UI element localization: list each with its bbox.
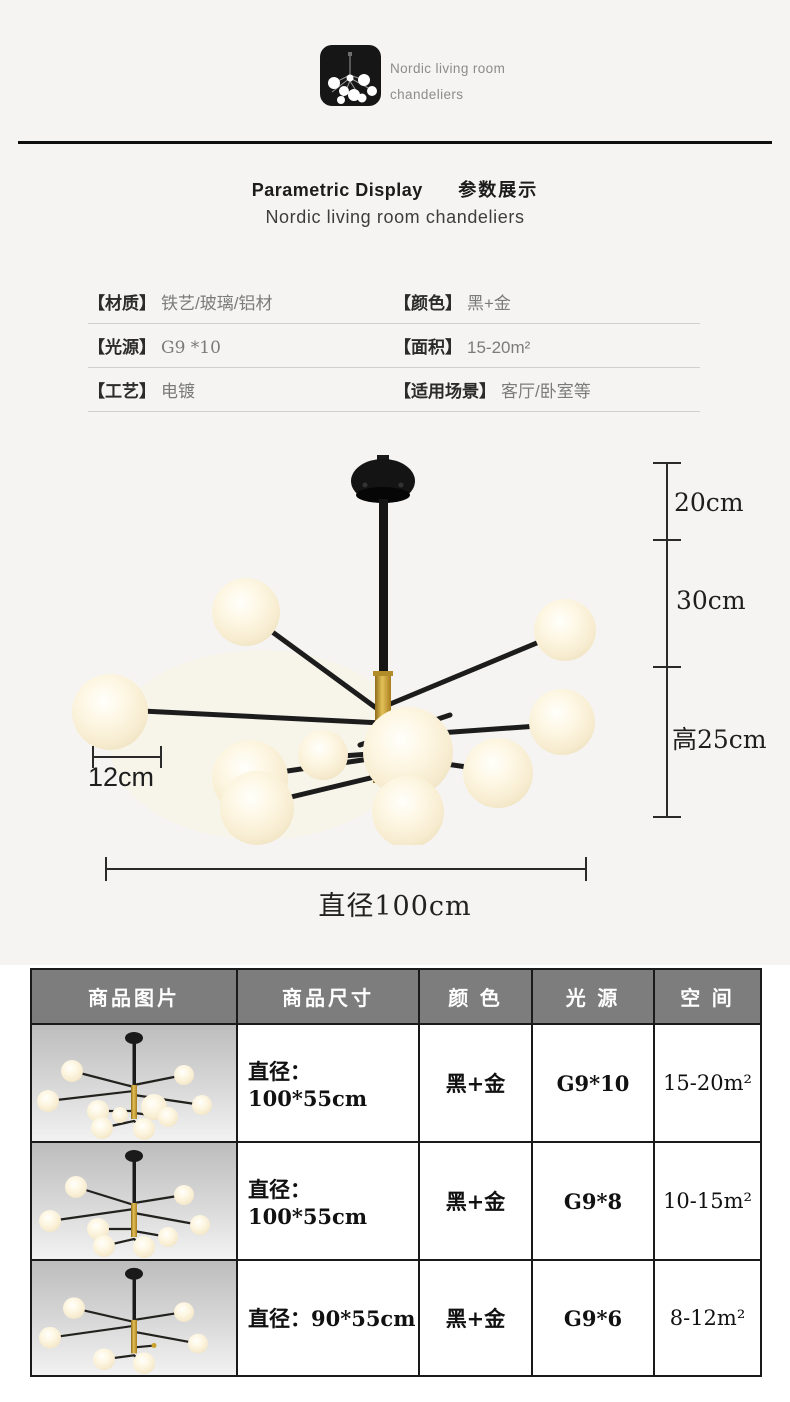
diameter-dimension-line — [105, 868, 587, 870]
dim-top-rod: 20cm — [674, 488, 744, 517]
dim-mid-rod: 30cm — [676, 586, 746, 615]
product-figure: 20cm 30cm 高25cm 12cm 直径100cm — [0, 440, 790, 965]
dim-diameter: 直径100cm — [0, 884, 790, 923]
param-light-source: 【光源】 G9 *10 — [88, 333, 394, 358]
page-title: Parametric Display 参数展示 — [0, 176, 790, 202]
page-subtitle: Nordic living room chandeliers — [0, 207, 790, 228]
product-photo — [32, 1261, 236, 1375]
parameter-list: 【材质】 铁艺/玻璃/铝材 【颜色】 黑+金 【光源】 G9 *10 【面积】 … — [88, 280, 700, 412]
product-photo — [32, 1143, 236, 1259]
param-label: 【材质】 — [88, 289, 156, 314]
param-label: 【适用场景】 — [394, 377, 496, 402]
param-color: 【颜色】 黑+金 — [394, 289, 700, 314]
product-photo — [32, 1025, 236, 1141]
cell-color: 黑+金 — [420, 1261, 531, 1375]
param-value: 黑+金 — [467, 289, 511, 314]
dimension-tick — [653, 462, 681, 464]
dimension-tick — [653, 816, 681, 818]
parameter-row: 【工艺】 电镀 【适用场景】 客厅/卧室等 — [88, 368, 700, 412]
dim-body-height: 高25cm — [672, 720, 767, 756]
brand-name-line1: Nordic living room — [390, 56, 505, 82]
dimension-tick — [105, 857, 107, 881]
param-label: 【工艺】 — [88, 377, 156, 402]
dim-globe: 12cm — [88, 762, 154, 793]
dimension-tick — [653, 539, 681, 541]
brand-name-line2: chandeliers — [390, 82, 505, 108]
cell-space: 15-20m² — [655, 1025, 760, 1141]
col-header-light: 光 源 — [533, 970, 653, 1023]
param-value: 15-20m² — [467, 338, 530, 358]
param-material: 【材质】 铁艺/玻璃/铝材 — [88, 289, 394, 314]
cell-size: 直径：90*55cm — [238, 1261, 418, 1375]
col-header-color: 颜 色 — [420, 970, 531, 1023]
param-label: 【光源】 — [88, 333, 156, 358]
param-value: 电镀 — [161, 377, 195, 402]
param-value: 铁艺/玻璃/铝材 — [161, 289, 272, 314]
param-value: G9 *10 — [161, 338, 221, 358]
cell-size: 直径：100*55cm — [238, 1025, 418, 1141]
page-title-zh: 参数展示 — [458, 180, 538, 200]
param-area: 【面积】 15-20m² — [394, 333, 700, 358]
param-label: 【面积】 — [394, 333, 462, 358]
col-header-space: 空 间 — [655, 970, 760, 1023]
param-value: 客厅/卧室等 — [501, 377, 591, 402]
cell-color: 黑+金 — [420, 1025, 531, 1141]
cell-space: 10-15m² — [655, 1143, 760, 1259]
cell-size: 直径：100*55cm — [238, 1143, 418, 1259]
parameter-row: 【材质】 铁艺/玻璃/铝材 【颜色】 黑+金 — [88, 280, 700, 324]
brand-logo-icon — [320, 45, 381, 106]
globe-dimension-line — [92, 756, 162, 758]
dimension-tick — [160, 746, 162, 768]
cell-light: G9*10 — [533, 1025, 653, 1141]
variant-table: 商品图片 商品尺寸 颜 色 光 源 空 间 — [30, 968, 762, 1377]
param-label: 【颜色】 — [394, 289, 462, 314]
page-title-en: Parametric Display — [252, 180, 423, 200]
divider-line — [18, 141, 772, 144]
variant-table-section: 商品图片 商品尺寸 颜 色 光 源 空 间 — [0, 965, 790, 1402]
parametric-display-section: Nordic living room chandeliers Parametri… — [0, 0, 790, 965]
cell-color: 黑+金 — [420, 1143, 531, 1259]
col-header-size: 商品尺寸 — [238, 970, 418, 1023]
cell-light: G9*6 — [533, 1261, 653, 1375]
cell-space: 8-12m² — [655, 1261, 760, 1375]
brand-name: Nordic living room chandeliers — [390, 56, 505, 108]
vertical-dimension-line — [666, 463, 668, 818]
dimension-tick — [653, 666, 681, 668]
param-craft: 【工艺】 电镀 — [88, 377, 394, 402]
col-header-photo: 商品图片 — [32, 970, 236, 1023]
dimension-tick — [585, 857, 587, 881]
param-scene: 【适用场景】 客厅/卧室等 — [394, 377, 700, 402]
parameter-row: 【光源】 G9 *10 【面积】 15-20m² — [88, 324, 700, 368]
cell-light: G9*8 — [533, 1143, 653, 1259]
